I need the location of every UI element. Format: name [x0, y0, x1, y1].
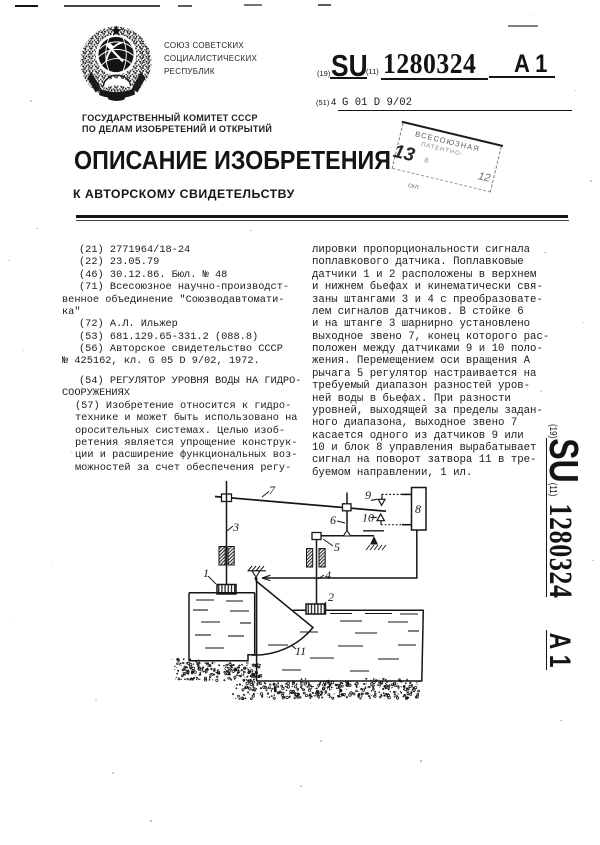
svg-text:6: 6 [330, 513, 336, 527]
svg-text:11: 11 [295, 644, 306, 658]
svg-text:1: 1 [203, 566, 209, 580]
svg-text:5: 5 [334, 540, 340, 554]
svg-text:8: 8 [415, 502, 421, 516]
svg-text:2: 2 [328, 590, 334, 604]
svg-text:4: 4 [325, 568, 331, 582]
svg-text:7: 7 [269, 483, 276, 497]
svg-text:3: 3 [232, 520, 239, 534]
svg-text:9: 9 [365, 488, 371, 502]
